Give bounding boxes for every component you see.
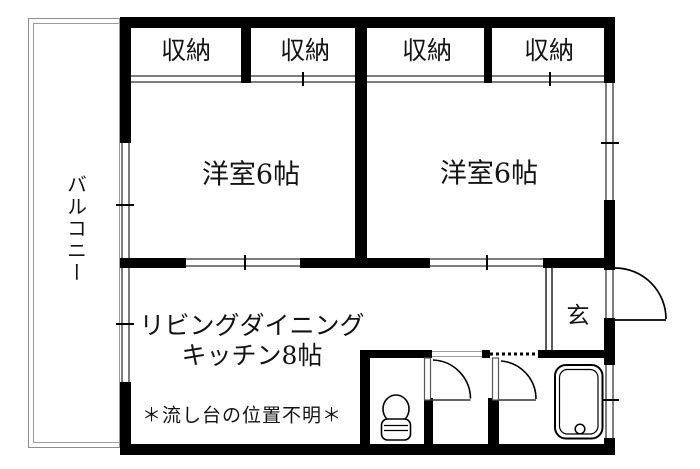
washroom-door-arc	[501, 361, 536, 399]
fixtures-layer	[0, 0, 700, 469]
toilet-tank	[382, 419, 411, 440]
closet2-label: 収納	[280, 31, 330, 67]
bedroom2-label: 洋室6帖	[440, 152, 538, 191]
ldk-label: リビングダイニング キッチン8帖	[139, 311, 364, 371]
closet1-label: 収納	[161, 31, 211, 67]
closet3-label: 収納	[402, 31, 452, 67]
ldk-label-line2: キッチン8帖	[139, 341, 364, 371]
toilet-door-arc	[433, 360, 471, 399]
bedroom1-label: 洋室6帖	[202, 153, 300, 192]
toilet-door-leaf	[425, 358, 431, 400]
ldk-label-line1: リビングダイニング	[139, 311, 364, 341]
closet4-label: 収納	[524, 31, 574, 67]
floor-plan: 収納 収納 収納 収納 洋室6帖 洋室6帖 リビングダイニング キッチン8帖 ＊…	[0, 0, 700, 469]
entrance-label: 玄	[567, 296, 590, 330]
washroom-door-leaf	[493, 358, 499, 400]
balcony-label: バルコニー	[62, 174, 91, 284]
sink-position-note: ＊流し台の位置不明＊	[142, 401, 342, 428]
entrance-door-arc	[615, 268, 666, 319]
bathtub-drain	[575, 424, 585, 434]
